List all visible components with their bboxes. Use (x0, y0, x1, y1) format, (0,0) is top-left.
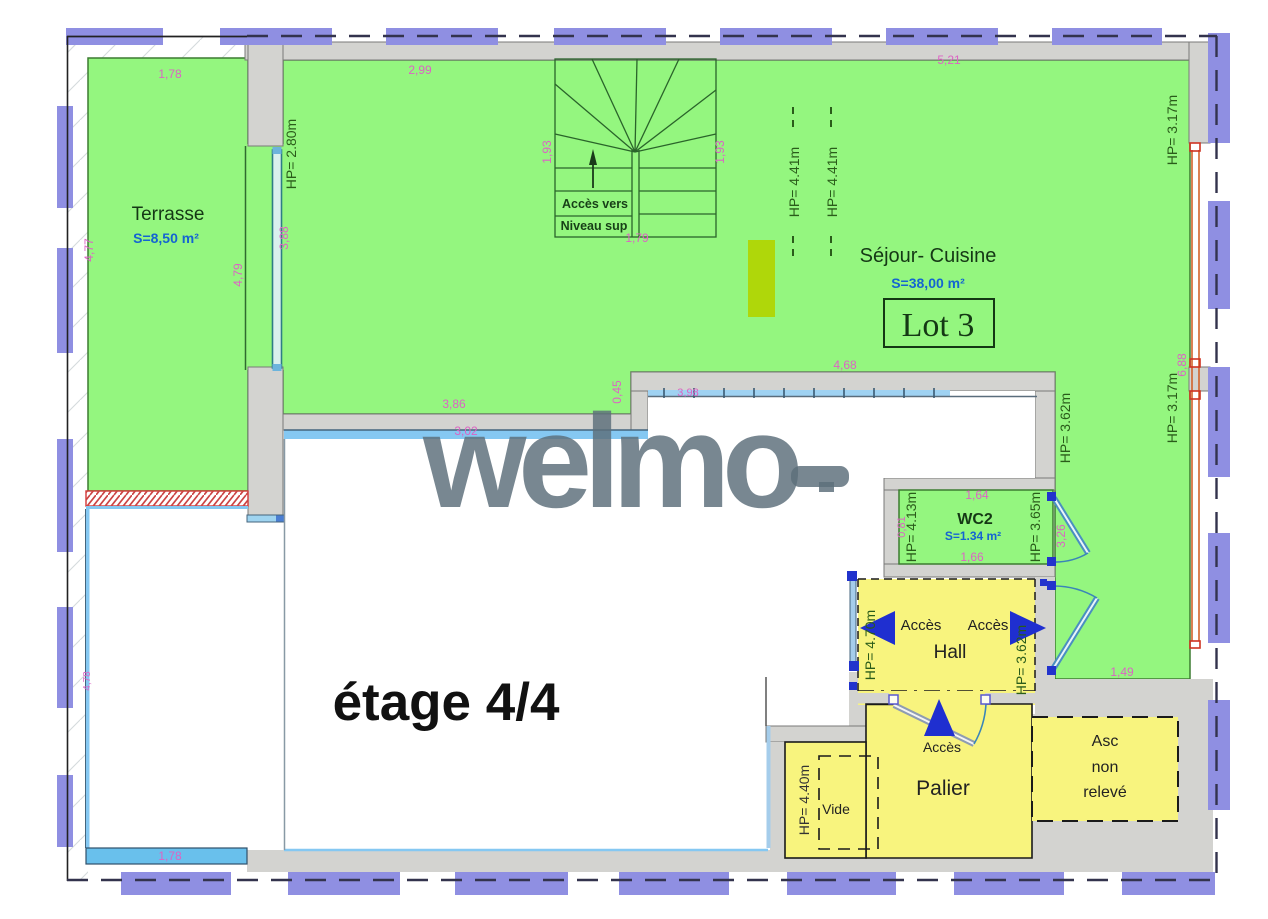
svg-text:0,81: 0,81 (896, 516, 908, 537)
svg-text:6,88: 6,88 (1175, 353, 1189, 377)
svg-text:2,99: 2,99 (408, 63, 432, 77)
svg-text:Hall: Hall (934, 642, 967, 663)
svg-text:4,77: 4,77 (82, 238, 96, 262)
svg-text:4,68: 4,68 (833, 358, 857, 372)
svg-text:HP= 3.62m: HP= 3.62m (1013, 625, 1029, 695)
svg-text:WC2: WC2 (957, 511, 993, 528)
svg-text:Palier: Palier (916, 777, 970, 800)
svg-text:HP= 3.17m: HP= 3.17m (1164, 373, 1180, 443)
svg-text:1,93: 1,93 (540, 140, 554, 164)
svg-text:Séjour- Cuisine: Séjour- Cuisine (860, 245, 997, 267)
svg-text:HP= 3.65m: HP= 3.65m (1027, 492, 1043, 562)
svg-text:HP= 4.70m: HP= 4.70m (862, 610, 878, 680)
svg-text:HP= 3.17m: HP= 3.17m (1164, 95, 1180, 165)
svg-text:HP= 4.41m: HP= 4.41m (824, 147, 840, 217)
svg-text:1,66: 1,66 (960, 550, 984, 564)
svg-text:4,78: 4,78 (82, 671, 93, 691)
svg-text:3,86: 3,86 (442, 397, 466, 411)
svg-text:HP= 3.62m: HP= 3.62m (1057, 393, 1073, 463)
svg-text:3,98: 3,98 (677, 387, 698, 399)
svg-text:Vide: Vide (822, 801, 850, 817)
svg-text:1,93: 1,93 (713, 140, 727, 164)
svg-text:0,45: 0,45 (610, 380, 624, 404)
svg-text:3,26: 3,26 (1054, 524, 1068, 548)
svg-text:Accès: Accès (901, 617, 942, 634)
svg-text:non: non (1092, 759, 1119, 776)
svg-text:HP= 4.41m: HP= 4.41m (786, 147, 802, 217)
svg-text:4,79: 4,79 (231, 263, 245, 287)
svg-text:HP= 4.40m: HP= 4.40m (796, 765, 812, 835)
svg-text:1,49: 1,49 (1110, 665, 1134, 679)
svg-text:Terrasse: Terrasse (132, 204, 205, 225)
svg-text:5,21: 5,21 (937, 53, 961, 67)
svg-text:Lot 3: Lot 3 (902, 307, 975, 344)
svg-text:1,78: 1,78 (158, 67, 182, 81)
svg-text:Niveau sup: Niveau sup (561, 219, 628, 233)
svg-text:relevé: relevé (1083, 784, 1127, 801)
svg-text:3,02: 3,02 (454, 424, 478, 438)
svg-text:Accès: Accès (968, 617, 1009, 634)
svg-text:Accès: Accès (923, 739, 961, 755)
svg-text:S=8,50 m²: S=8,50 m² (133, 230, 199, 246)
svg-text:S=38,00 m²: S=38,00 m² (891, 275, 965, 291)
svg-text:welmo: welmo (422, 388, 799, 536)
svg-text:HP= 2.80m: HP= 2.80m (283, 119, 299, 189)
svg-text:Accès vers: Accès vers (562, 197, 628, 211)
svg-text:Asc: Asc (1092, 733, 1119, 750)
svg-text:S=1.34 m²: S=1.34 m² (945, 529, 1001, 543)
svg-text:3,88: 3,88 (277, 226, 291, 250)
svg-text:étage 4/4: étage 4/4 (333, 673, 560, 732)
svg-text:1,64: 1,64 (965, 488, 989, 502)
svg-text:1,79: 1,79 (625, 231, 649, 245)
svg-text:1,78: 1,78 (158, 849, 182, 863)
